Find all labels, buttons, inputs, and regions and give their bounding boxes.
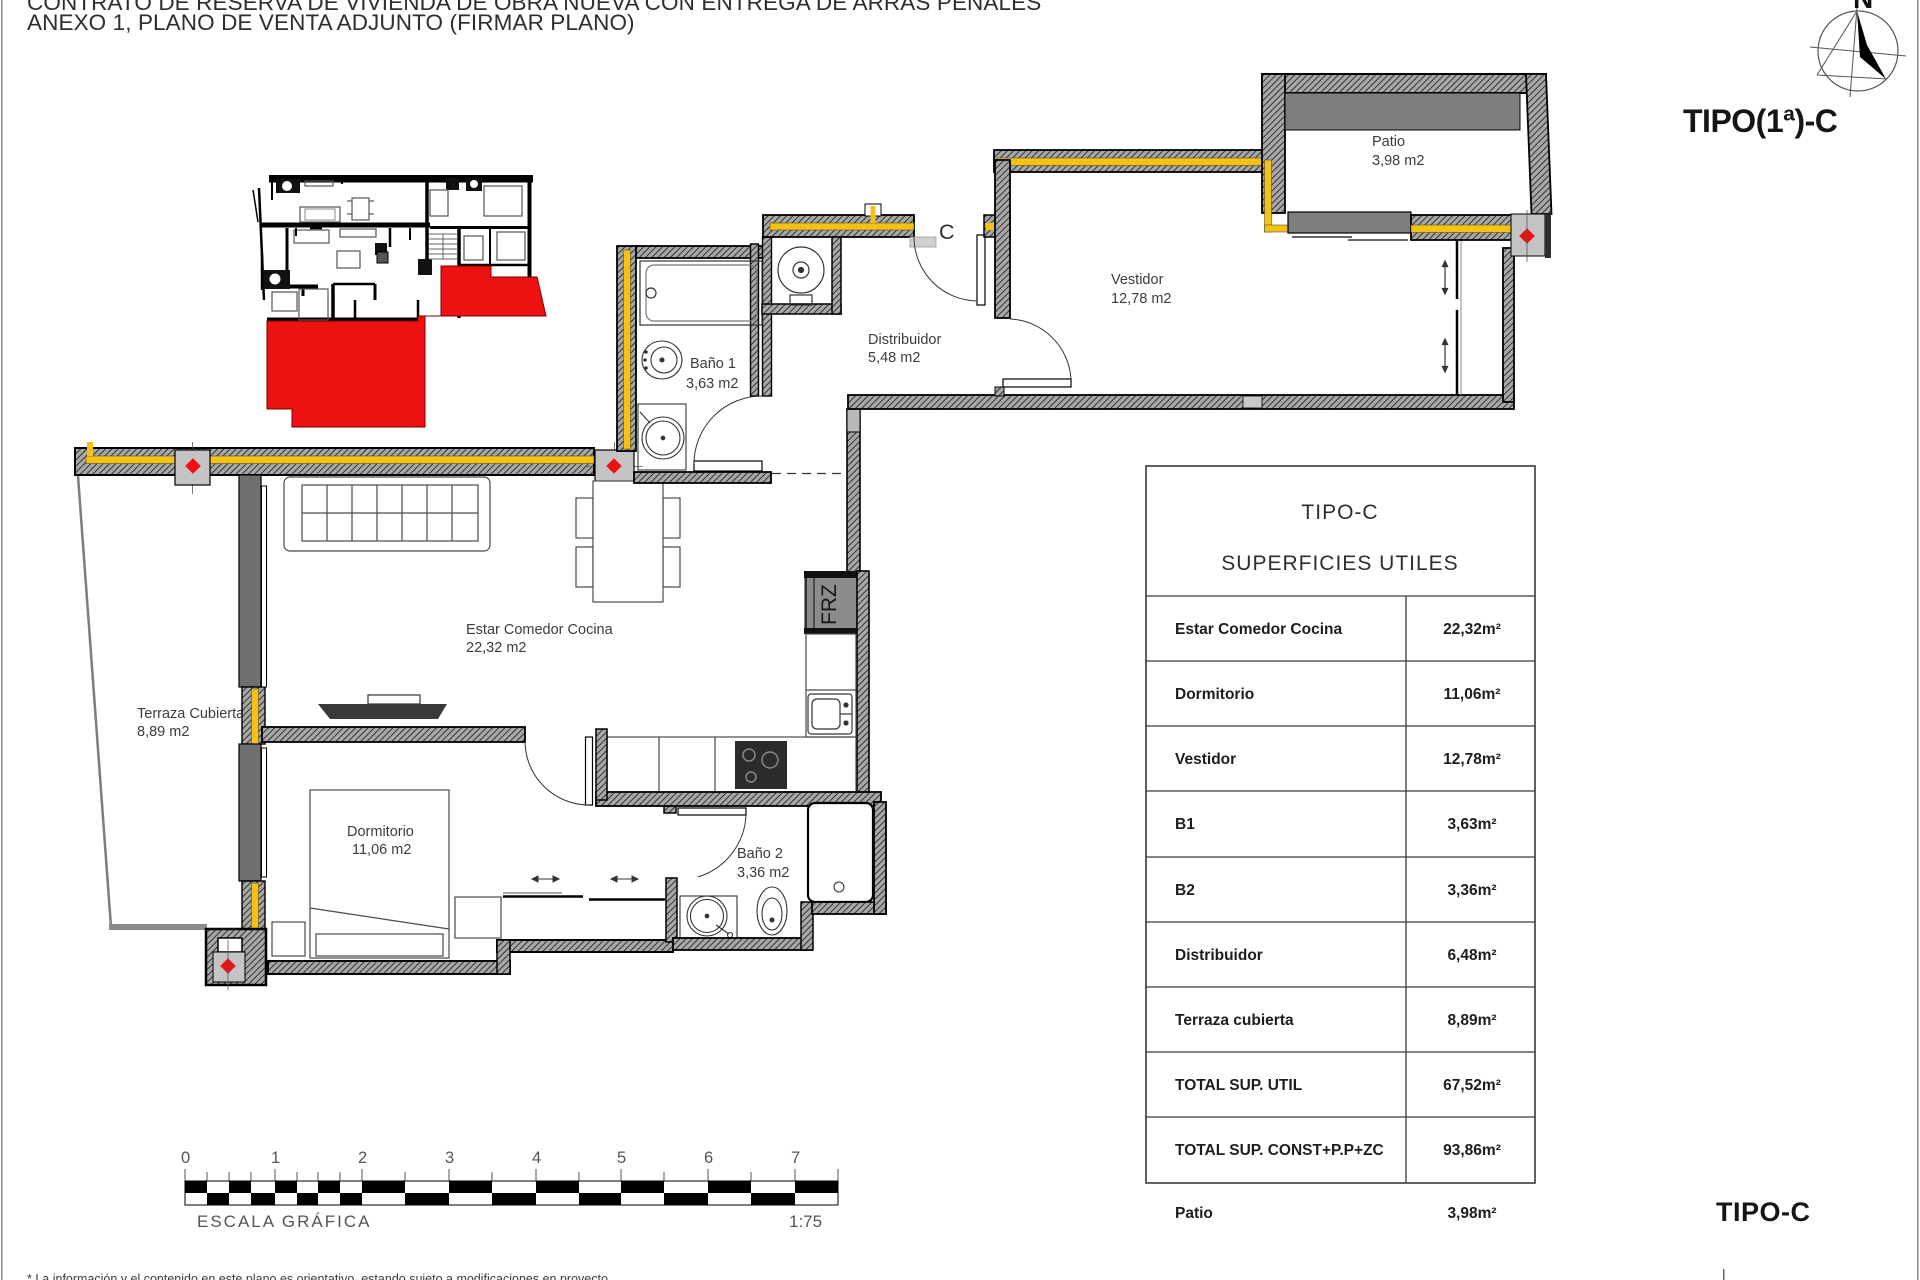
svg-text:12,78m²: 12,78m² [1443, 751, 1501, 768]
svg-text:0: 0 [181, 1149, 190, 1167]
svg-text:TIPO(1ª)-C: TIPO(1ª)-C [1683, 103, 1838, 139]
svg-text:SUPERFICIES UTILES: SUPERFICIES UTILES [1221, 552, 1458, 575]
svg-text:1:75: 1:75 [789, 1212, 822, 1231]
svg-text:3,98 m2: 3,98 m2 [1372, 153, 1424, 169]
svg-text:8,89 m2: 8,89 m2 [137, 724, 189, 740]
svg-text:1: 1 [271, 1149, 280, 1167]
svg-text:Patio: Patio [1372, 134, 1405, 150]
svg-text:Terraza cubierta: Terraza cubierta [1175, 1012, 1294, 1029]
svg-text:8,89m²: 8,89m² [1447, 1012, 1496, 1029]
svg-text:11,06m²: 11,06m² [1444, 686, 1501, 703]
svg-text:3,63m²: 3,63m² [1447, 816, 1496, 833]
svg-text:22,32m²: 22,32m² [1443, 621, 1501, 638]
svg-text:6,48m²: 6,48m² [1447, 947, 1496, 964]
svg-text:11,06 m2: 11,06 m2 [352, 842, 411, 858]
svg-text:Distribuidor: Distribuidor [868, 332, 941, 348]
svg-text:ESCALA GRÁFICA: ESCALA GRÁFICA [197, 1212, 371, 1231]
svg-text:3: 3 [445, 1149, 454, 1167]
svg-text:7: 7 [791, 1149, 800, 1167]
svg-text:ANEXO 1, PLANO DE VENTA ADJUNT: ANEXO 1, PLANO DE VENTA ADJUNTO (FIRMAR … [27, 10, 635, 35]
svg-text:Estar Comedor Cocina: Estar Comedor Cocina [1175, 621, 1342, 638]
svg-text:5,48 m2: 5,48 m2 [868, 350, 920, 366]
svg-text:3,36m²: 3,36m² [1447, 882, 1496, 899]
svg-text:22,32 m2: 22,32 m2 [466, 640, 526, 656]
svg-text:12,78 m2: 12,78 m2 [1111, 291, 1171, 307]
svg-text:TOTAL SUP. UTIL: TOTAL SUP. UTIL [1175, 1077, 1302, 1094]
svg-text:6: 6 [704, 1149, 713, 1167]
svg-text:B2: B2 [1175, 882, 1195, 899]
svg-text:2: 2 [358, 1149, 367, 1167]
svg-text:N: N [1853, 0, 1873, 14]
svg-text:Estar Comedor Cocina: Estar Comedor Cocina [466, 622, 614, 638]
svg-text:5: 5 [617, 1149, 626, 1167]
svg-text:3,36 m2: 3,36 m2 [737, 865, 789, 881]
svg-text:3,63 m2: 3,63 m2 [686, 376, 738, 392]
svg-text:Vestidor: Vestidor [1111, 272, 1164, 288]
svg-text:93,86m²: 93,86m² [1443, 1142, 1501, 1159]
svg-text:Distribuidor: Distribuidor [1175, 947, 1263, 964]
svg-text:Patio: Patio [1175, 1205, 1213, 1222]
svg-text:C: C [939, 220, 955, 244]
svg-text:Baño 2: Baño 2 [737, 846, 783, 862]
svg-text:B1: B1 [1175, 816, 1195, 833]
svg-text:FRZ: FRZ [818, 584, 841, 625]
svg-text:Baño 1: Baño 1 [690, 356, 736, 372]
svg-text:Vestidor: Vestidor [1175, 751, 1236, 768]
svg-text:Terraza Cubierta: Terraza Cubierta [137, 706, 245, 722]
svg-text:67,52m²: 67,52m² [1443, 1077, 1501, 1094]
svg-text:Dormitorio: Dormitorio [347, 824, 414, 840]
svg-text:Dormitorio: Dormitorio [1175, 686, 1254, 703]
svg-text:4: 4 [532, 1149, 541, 1167]
svg-text:3,98m²: 3,98m² [1447, 1205, 1496, 1222]
svg-text:TIPO-C: TIPO-C [1716, 1197, 1811, 1227]
svg-text:TIPO-C: TIPO-C [1301, 501, 1378, 524]
svg-text:* La información y el contenid: * La información y el contenido en este … [27, 1272, 611, 1280]
svg-text:TOTAL SUP. CONST+P.P+ZC: TOTAL SUP. CONST+P.P+ZC [1175, 1142, 1384, 1159]
